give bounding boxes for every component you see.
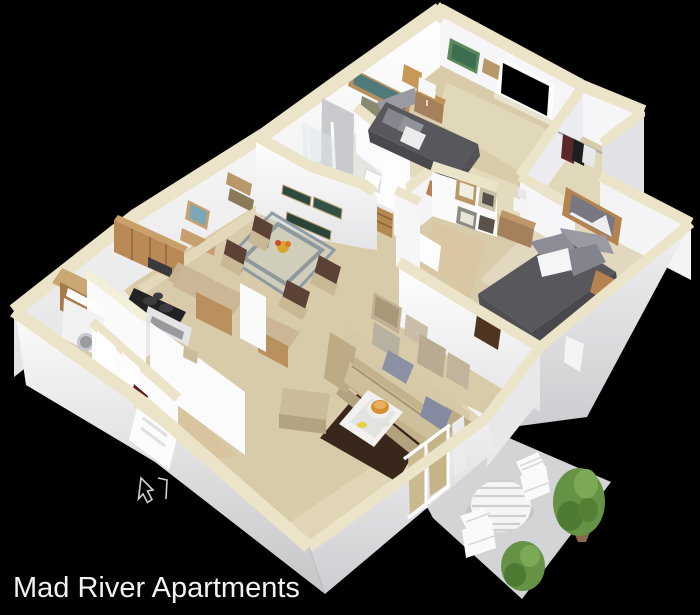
svg-text:Mad River Apartments: Mad River Apartments [13, 572, 300, 604]
